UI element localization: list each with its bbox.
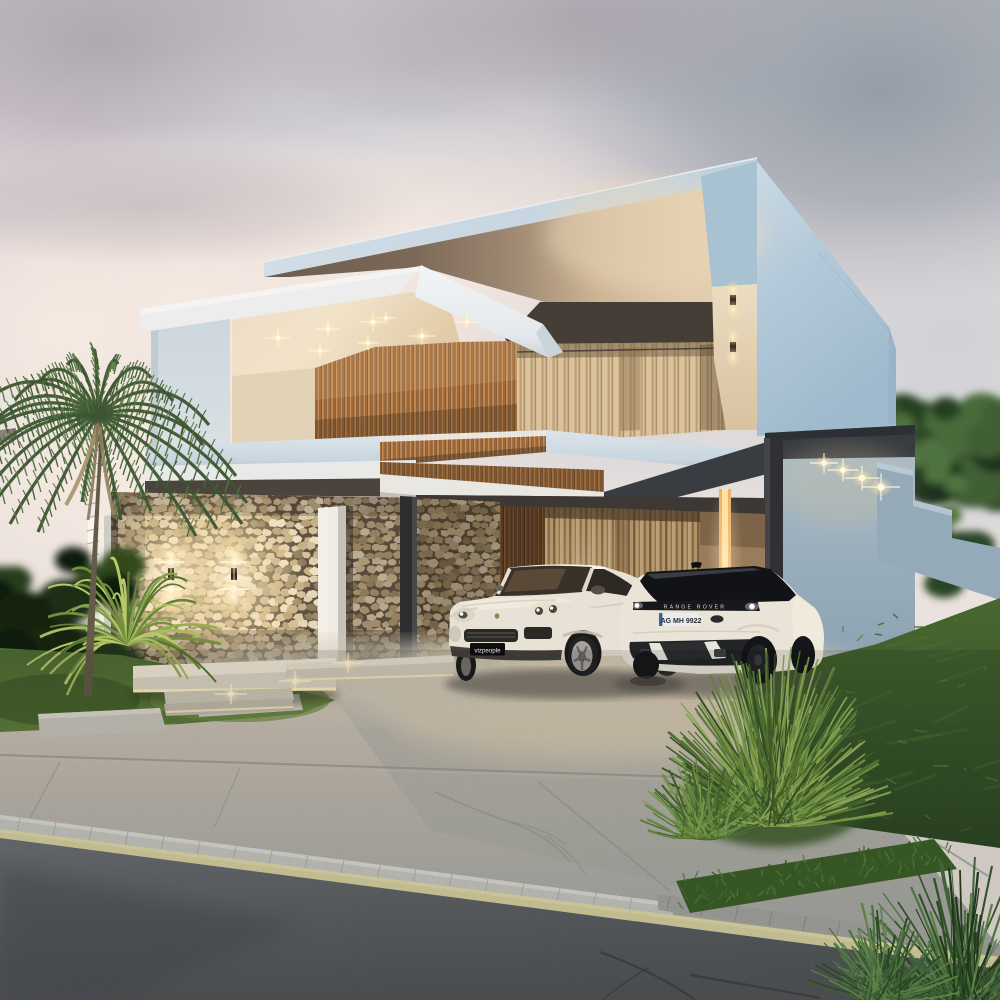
svg-text:AG MH 9922: AG MH 9922: [661, 618, 702, 625]
svg-text:RANGE ROVER: RANGE ROVER: [664, 605, 727, 611]
